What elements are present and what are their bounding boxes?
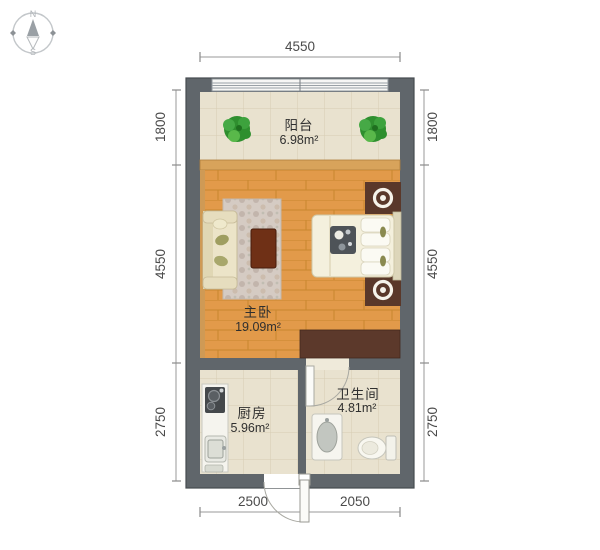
compass-east-marker (50, 30, 56, 36)
wardrobe (300, 330, 400, 358)
interior-wall-kitchen-bathroom (298, 358, 306, 474)
interior-wall-bedroom-kitchen (200, 358, 306, 370)
bathroom-area-label: 4.81m² (338, 401, 377, 415)
dimension-top-label: 4550 (285, 39, 315, 54)
floor-plan-page: N S 4550 2500 2050 1800 4550 2750 (0, 0, 600, 550)
compass-west-marker (10, 30, 16, 36)
bathroom-door-leaf (306, 366, 314, 406)
bathroom-name-label: 卫生间 (336, 387, 380, 402)
bedroom-name-label: 主卧 (244, 305, 273, 320)
kitchen-sink-icon (205, 436, 226, 472)
bedroom-area-label: 19.09m² (235, 320, 281, 334)
pillow (361, 262, 390, 275)
washbasin-icon (312, 414, 342, 460)
pillow-bow (380, 256, 386, 267)
dimension-bottom-right-label: 2050 (340, 494, 370, 509)
pillow (361, 233, 390, 246)
dimension-left-bedroom-label: 4550 (153, 249, 168, 279)
coffee-table (251, 229, 276, 268)
sofa (203, 211, 237, 289)
dimension-left: 1800 4550 2750 (153, 90, 181, 481)
compass-needle-south (27, 37, 39, 49)
compass-rose-icon: N S (10, 9, 56, 57)
bed (312, 212, 401, 280)
compass-needle-north (27, 19, 39, 36)
dimension-right-bathroom-label: 2750 (425, 407, 440, 437)
balcony-window-sill (200, 160, 400, 170)
dimension-top: 4550 (200, 39, 400, 62)
dimension-right-bedroom-label: 4550 (425, 249, 440, 279)
pillow-bow (380, 227, 386, 238)
floor-plan-canvas: N S 4550 2500 2050 1800 4550 2750 (0, 0, 600, 550)
dimension-right: 1800 4550 2750 (420, 90, 440, 481)
interior-wall-bedroom-bathroom (349, 358, 400, 370)
entry-door-leaf (300, 480, 309, 522)
dimension-right-balcony-label: 1800 (425, 112, 440, 142)
balcony-area-label: 6.98m² (280, 133, 319, 147)
kitchen-area-label: 5.96m² (231, 421, 270, 435)
balcony-name-label: 阳台 (285, 118, 314, 133)
dimension-bottom-left-label: 2500 (238, 494, 268, 509)
toilet-icon (358, 436, 396, 460)
compass-north-label: N (30, 9, 37, 19)
dimension-left-kitchen-label: 2750 (153, 407, 168, 437)
stove-icon (205, 387, 225, 413)
bed-tray (330, 226, 356, 254)
window-icon (212, 79, 388, 91)
dimension-left-balcony-label: 1800 (153, 112, 168, 142)
kitchen-name-label: 厨房 (238, 406, 267, 421)
